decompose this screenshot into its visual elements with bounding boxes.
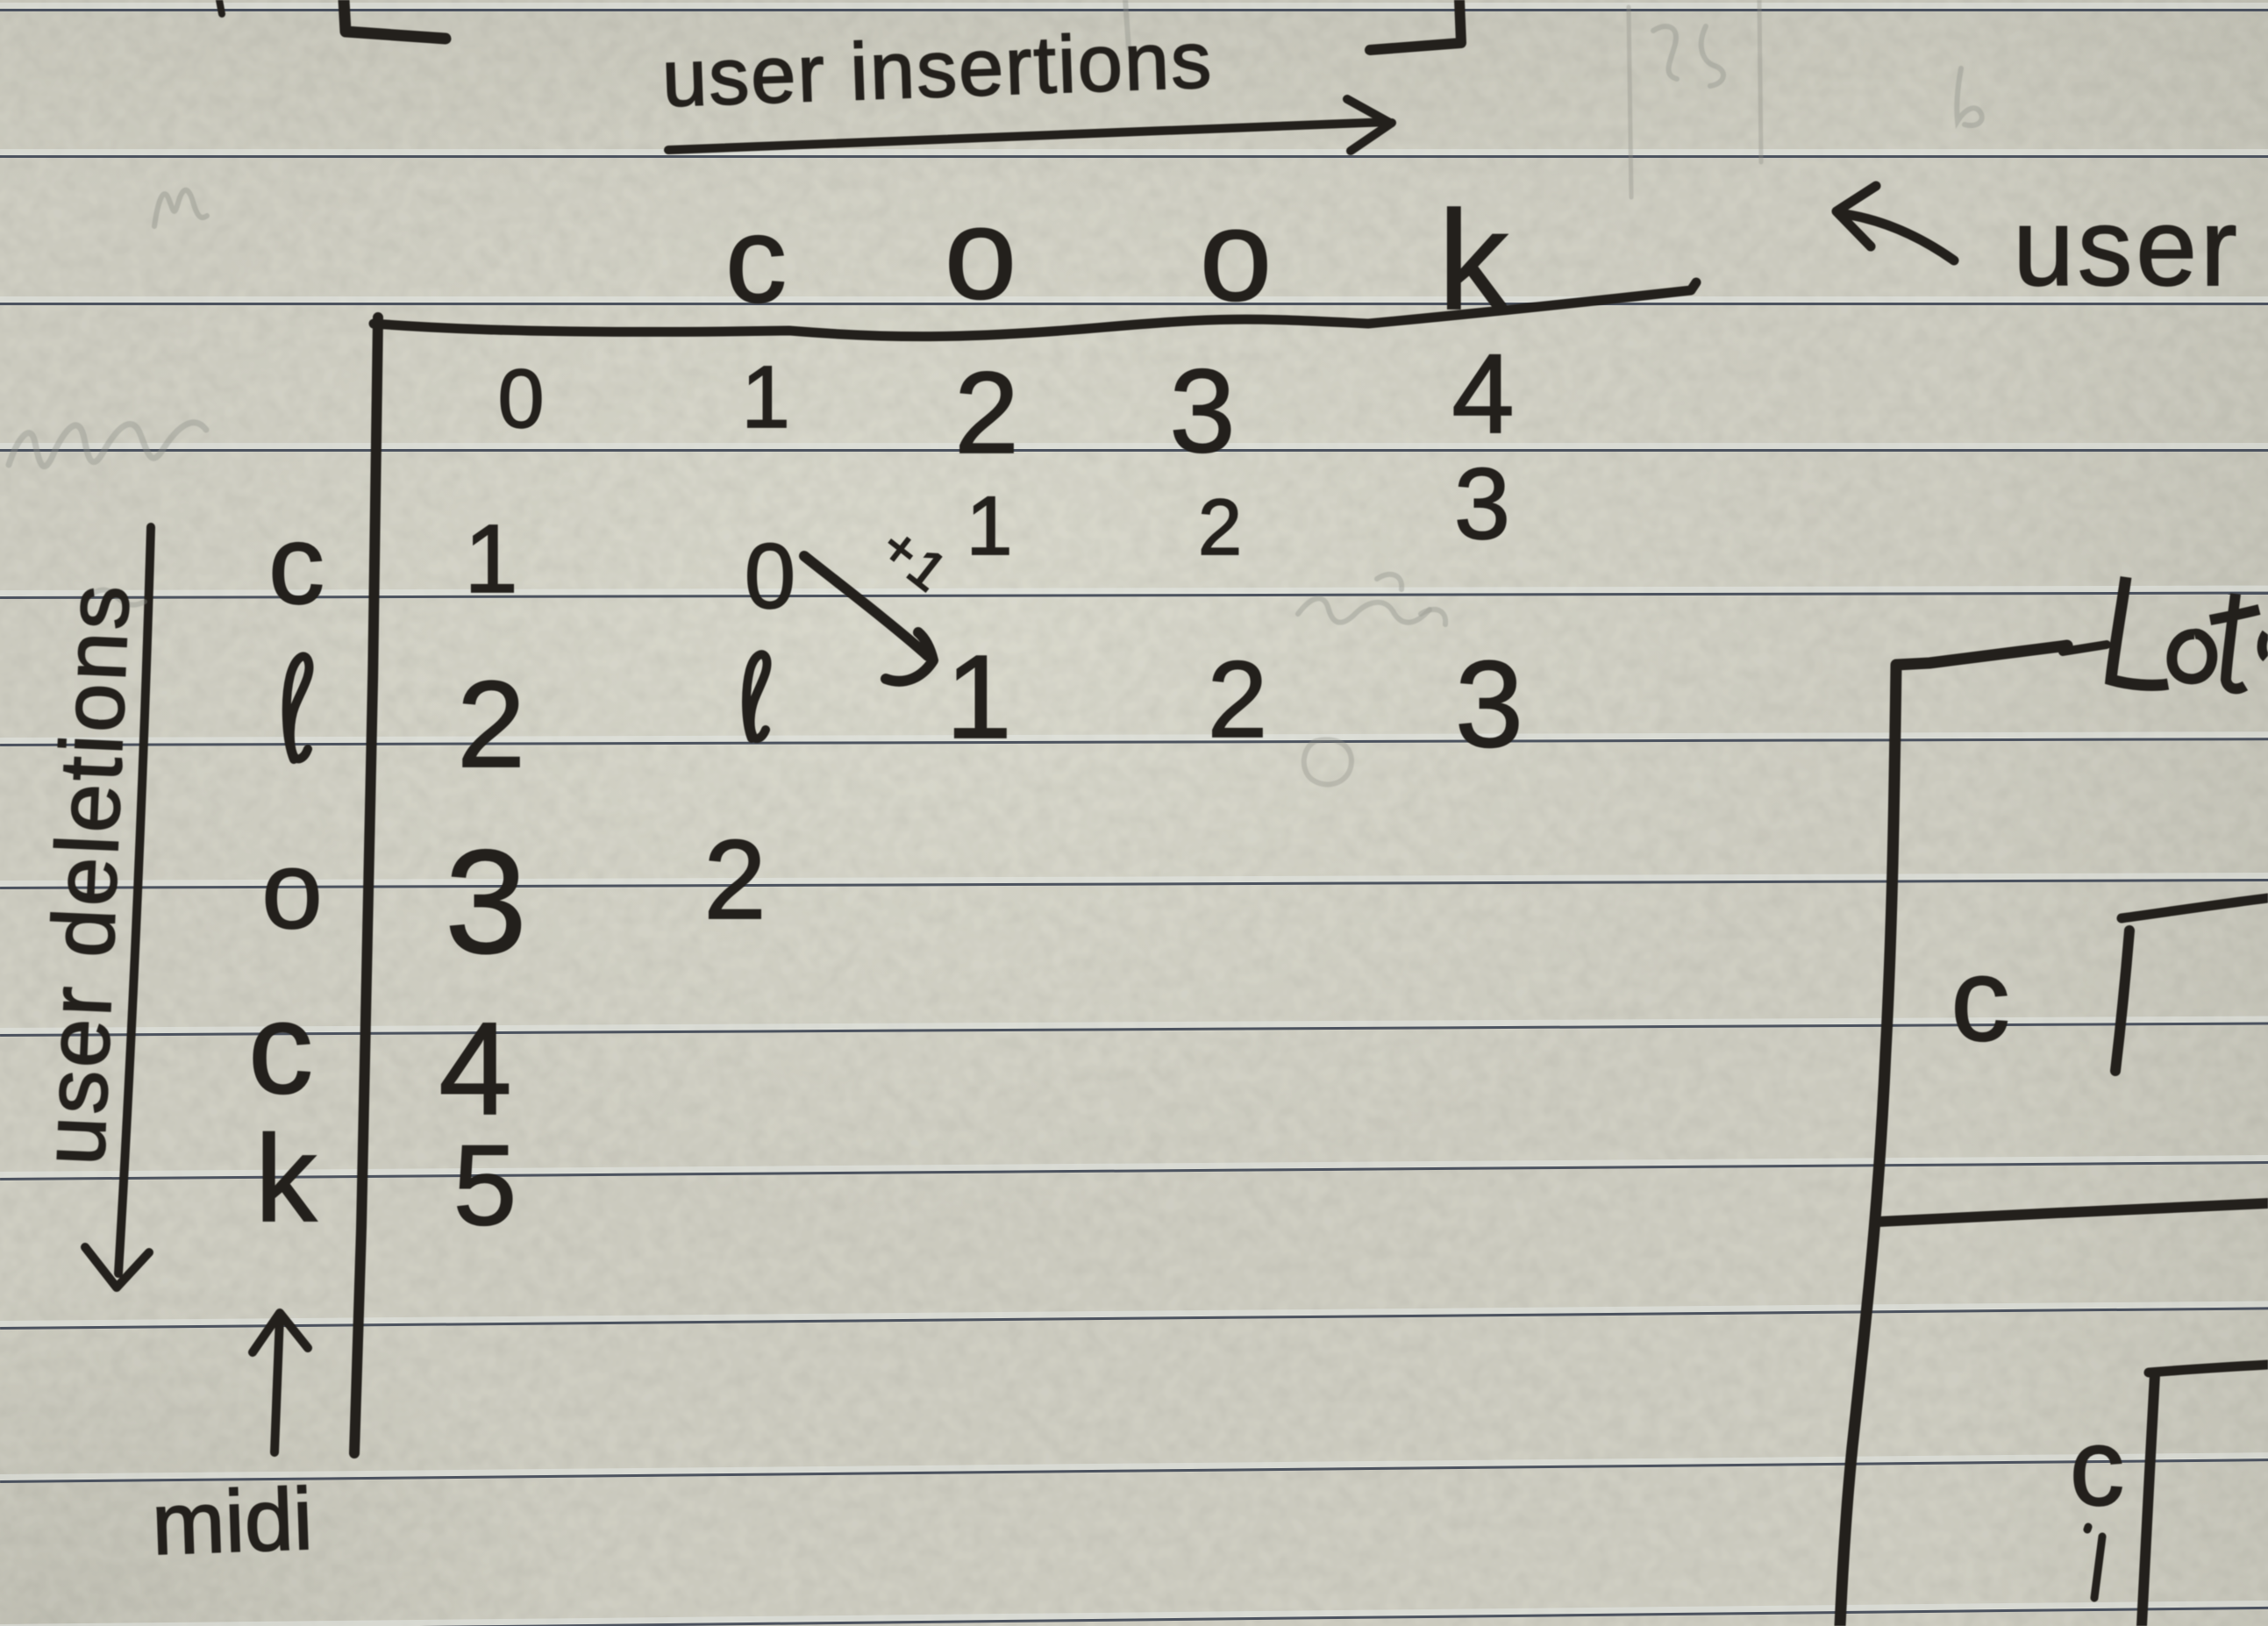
svg-text:c: c xyxy=(1951,933,2010,1066)
svg-text:k: k xyxy=(1438,182,1509,339)
svg-text:0: 0 xyxy=(745,525,795,628)
svg-text:3: 3 xyxy=(1169,345,1235,477)
svg-text:2: 2 xyxy=(1208,640,1267,760)
svg-text:4: 4 xyxy=(439,995,511,1142)
svg-text:2: 2 xyxy=(954,348,1018,477)
svg-text:o: o xyxy=(261,830,323,952)
svg-text:+1: +1 xyxy=(869,516,959,605)
svg-text:1: 1 xyxy=(966,480,1013,573)
svg-text:c: c xyxy=(725,190,787,328)
svg-text:1: 1 xyxy=(741,348,790,446)
svg-text:5: 5 xyxy=(453,1121,517,1249)
svg-text:0: 0 xyxy=(498,353,545,446)
svg-text:3: 3 xyxy=(445,819,526,984)
svg-text:user insertions: user insertions xyxy=(660,15,1214,124)
svg-text:1: 1 xyxy=(945,631,1011,763)
svg-text:2: 2 xyxy=(1198,484,1242,572)
svg-text:c: c xyxy=(2070,1407,2125,1529)
svg-text:o: o xyxy=(945,182,1016,326)
svg-text:o: o xyxy=(1200,183,1272,328)
svg-text:user: user xyxy=(2013,187,2240,309)
svg-text:c: c xyxy=(268,503,325,628)
svg-text:2: 2 xyxy=(703,817,766,943)
svg-text:c: c xyxy=(248,976,313,1121)
svg-text:1: 1 xyxy=(464,505,517,613)
svg-text:2: 2 xyxy=(457,655,525,793)
svg-text:midi: midi xyxy=(150,1470,314,1573)
svg-text:3: 3 xyxy=(1455,635,1523,773)
svg-text:k: k xyxy=(255,1109,317,1247)
svg-text:4: 4 xyxy=(1451,332,1514,457)
svg-text:3: 3 xyxy=(1454,448,1510,560)
